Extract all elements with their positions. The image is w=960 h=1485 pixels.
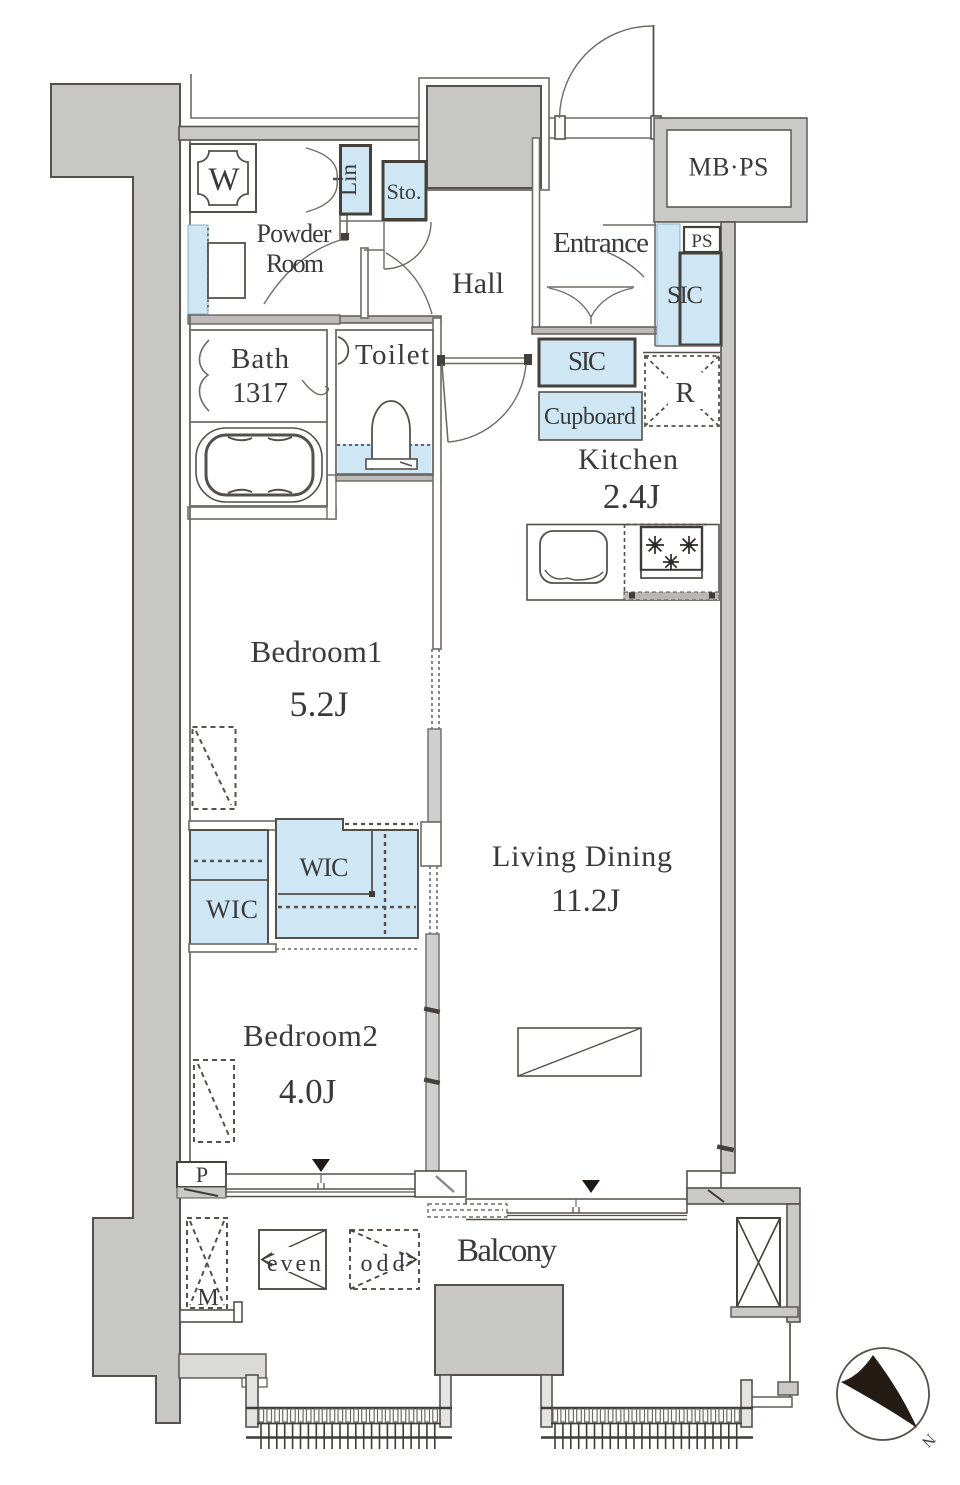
svg-text:Living Dining: Living Dining bbox=[492, 840, 672, 873]
svg-text:Kitchen: Kitchen bbox=[578, 443, 678, 476]
svg-text:Bedroom1: Bedroom1 bbox=[251, 634, 383, 669]
svg-text:1317: 1317 bbox=[232, 377, 288, 409]
svg-text:Bedroom2: Bedroom2 bbox=[243, 1018, 378, 1053]
svg-text:WIC: WIC bbox=[206, 895, 258, 924]
svg-text:5.2J: 5.2J bbox=[289, 684, 348, 724]
svg-text:Toilet: Toilet bbox=[355, 339, 429, 371]
svg-text:11.2J: 11.2J bbox=[551, 883, 621, 919]
svg-text:4.0J: 4.0J bbox=[279, 1072, 336, 1111]
svg-text:Powder: Powder bbox=[257, 219, 332, 248]
svg-text:Balcony: Balcony bbox=[457, 1233, 558, 1269]
svg-text:SIC: SIC bbox=[568, 346, 606, 376]
svg-text:WIC: WIC bbox=[300, 853, 349, 882]
svg-text:Room: Room bbox=[266, 249, 324, 278]
svg-text:MB·PS: MB·PS bbox=[689, 153, 769, 182]
svg-text:Cupboard: Cupboard bbox=[544, 404, 636, 430]
svg-text:2.4J: 2.4J bbox=[603, 477, 660, 516]
svg-text:Lin: Lin bbox=[336, 164, 361, 196]
svg-text:PS: PS bbox=[691, 231, 712, 252]
svg-text:Entrance: Entrance bbox=[553, 227, 649, 259]
svg-text:Sto.: Sto. bbox=[387, 179, 422, 204]
svg-text:P: P bbox=[196, 1162, 208, 1187]
svg-text:SIC: SIC bbox=[667, 282, 703, 309]
svg-text:W: W bbox=[208, 162, 240, 198]
svg-text:Bath: Bath bbox=[231, 343, 290, 375]
svg-text:Hall: Hall bbox=[452, 267, 504, 300]
svg-text:M: M bbox=[197, 1285, 218, 1311]
svg-text:R: R bbox=[675, 377, 695, 409]
svg-text:odd: odd bbox=[361, 1251, 405, 1277]
